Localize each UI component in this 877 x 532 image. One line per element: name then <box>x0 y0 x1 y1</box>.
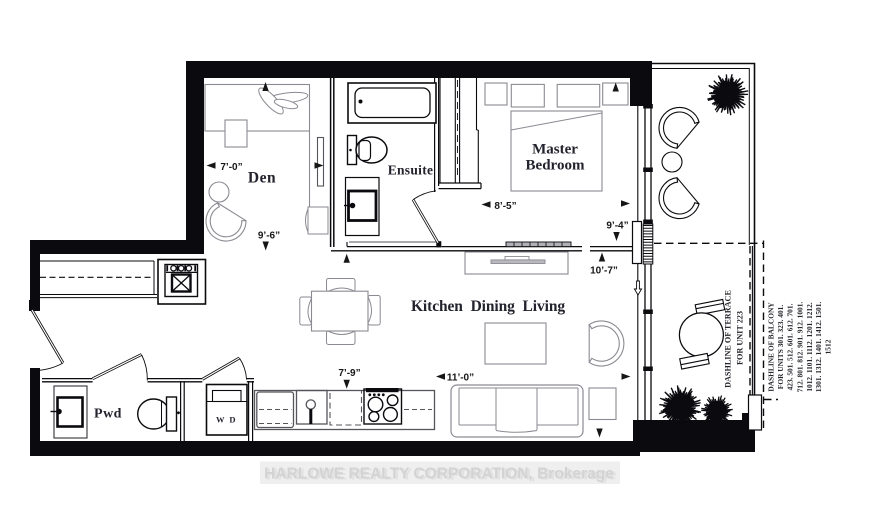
svg-text:712. 801. 812. 901. 912. 1001.: 712. 801. 812. 901. 912. 1001. <box>796 302 805 393</box>
svg-text:1301. 1312. 1401. 1412. 1501.: 1301. 1312. 1401. 1412. 1501. <box>814 302 823 393</box>
svg-text:Pwd: Pwd <box>94 407 122 422</box>
svg-text:Kitchen Dining Living: Kitchen Dining Living <box>411 298 565 315</box>
svg-text:DASHLINE OF TERRACE: DASHLINE OF TERRACE <box>724 290 733 388</box>
svg-text:10’-7”: 10’-7” <box>590 266 618 277</box>
svg-text:7’-9”: 7’-9” <box>338 368 360 379</box>
svg-text:1512: 1512 <box>824 339 833 354</box>
svg-text:7’-0”: 7’-0” <box>220 162 242 173</box>
svg-text:8’-5”: 8’-5” <box>494 201 516 212</box>
svg-text:Ensuite: Ensuite <box>388 163 434 178</box>
svg-text:DASHLINE OF BALCONY: DASHLINE OF BALCONY <box>767 302 776 392</box>
svg-text:423. 501. 512. 601. 612. 701.: 423. 501. 512. 601. 612. 701. <box>786 303 795 390</box>
svg-text:11’-0”: 11’-0” <box>447 373 474 384</box>
svg-text:FOR UNIT 223: FOR UNIT 223 <box>736 311 745 365</box>
svg-text:Master: Master <box>532 142 578 158</box>
svg-text:HARLOWE REALTY CORPORATION, Br: HARLOWE REALTY CORPORATION, Brokerage <box>264 466 614 483</box>
svg-text:FOR UNITS 301. 323. 401.: FOR UNITS 301. 323. 401. <box>776 305 785 390</box>
svg-text:1012. 1101. 1112. 1201. 1212.: 1012. 1101. 1112. 1201. 1212. <box>805 302 814 391</box>
svg-text:Den: Den <box>248 170 276 187</box>
svg-text:Bedroom: Bedroom <box>526 158 585 174</box>
svg-text:W D: W D <box>216 415 237 425</box>
svg-text:9’-4”: 9’-4” <box>606 221 628 232</box>
svg-text:9’-6”: 9’-6” <box>258 231 280 242</box>
